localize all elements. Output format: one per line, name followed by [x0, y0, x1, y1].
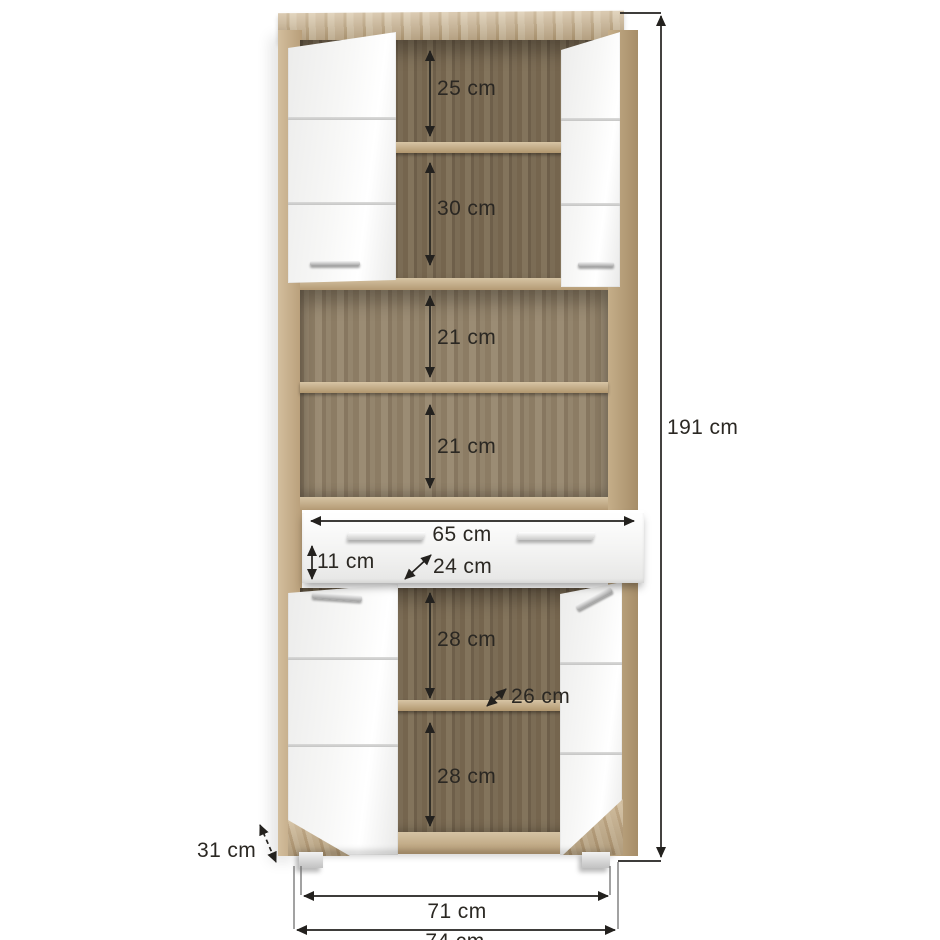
product-dimension-diagram: 25 cm 30 cm 21 cm 21 cm 65 cm 11 cm 24 c… [0, 0, 940, 940]
cabinet-foot-left [299, 852, 323, 868]
dim-label-lower-lower: 28 cm [437, 766, 496, 788]
dim-label-drawer-height: 11 cm [317, 551, 375, 573]
cabinet-foot-right [582, 852, 610, 868]
dim-label-top-compartment: 25 cm [437, 78, 496, 100]
door-handle [310, 261, 360, 266]
door-groove [561, 203, 620, 206]
dim-label-drawer-depth: 24 cm [433, 556, 492, 578]
dim-label-lower-upper: 28 cm [437, 629, 496, 651]
upper-left-door [288, 32, 396, 283]
drawer-handle-right [517, 532, 595, 540]
dim-label-overall-height: 191 cm [667, 417, 738, 439]
dim-label-second-compartment: 30 cm [437, 198, 496, 220]
cabinet-top-panel [278, 11, 624, 42]
shelf-drawer-divider [300, 497, 608, 510]
dim-label-overall-width: 74 cm [425, 931, 484, 940]
door-groove [288, 657, 398, 660]
open-shelf-back-panel [300, 290, 608, 498]
door-handle [312, 592, 362, 601]
lower-left-door [288, 584, 398, 855]
door-groove [288, 744, 398, 747]
upper-right-door [561, 32, 620, 287]
open-middle-shelf [300, 382, 608, 393]
door-handle [575, 587, 613, 611]
dim-label-feet-span: 71 cm [427, 901, 486, 923]
door-groove [560, 752, 622, 755]
door-groove [288, 117, 396, 120]
door-groove [288, 202, 396, 205]
floor-shadow [296, 850, 614, 857]
dim-arrow-31 [260, 825, 276, 862]
dim-label-lower-shelf-depth: 26 cm [511, 686, 570, 708]
door-handle [578, 262, 614, 267]
door-groove [560, 662, 622, 665]
dim-label-drawer-width: 65 cm [432, 524, 491, 546]
dim-label-open-shelf-lower: 21 cm [437, 436, 496, 458]
dim-label-depth: 31 cm [197, 840, 256, 862]
dim-label-open-shelf-upper: 21 cm [437, 327, 496, 349]
drawer-handle-left [347, 532, 425, 540]
door-groove [561, 118, 620, 121]
